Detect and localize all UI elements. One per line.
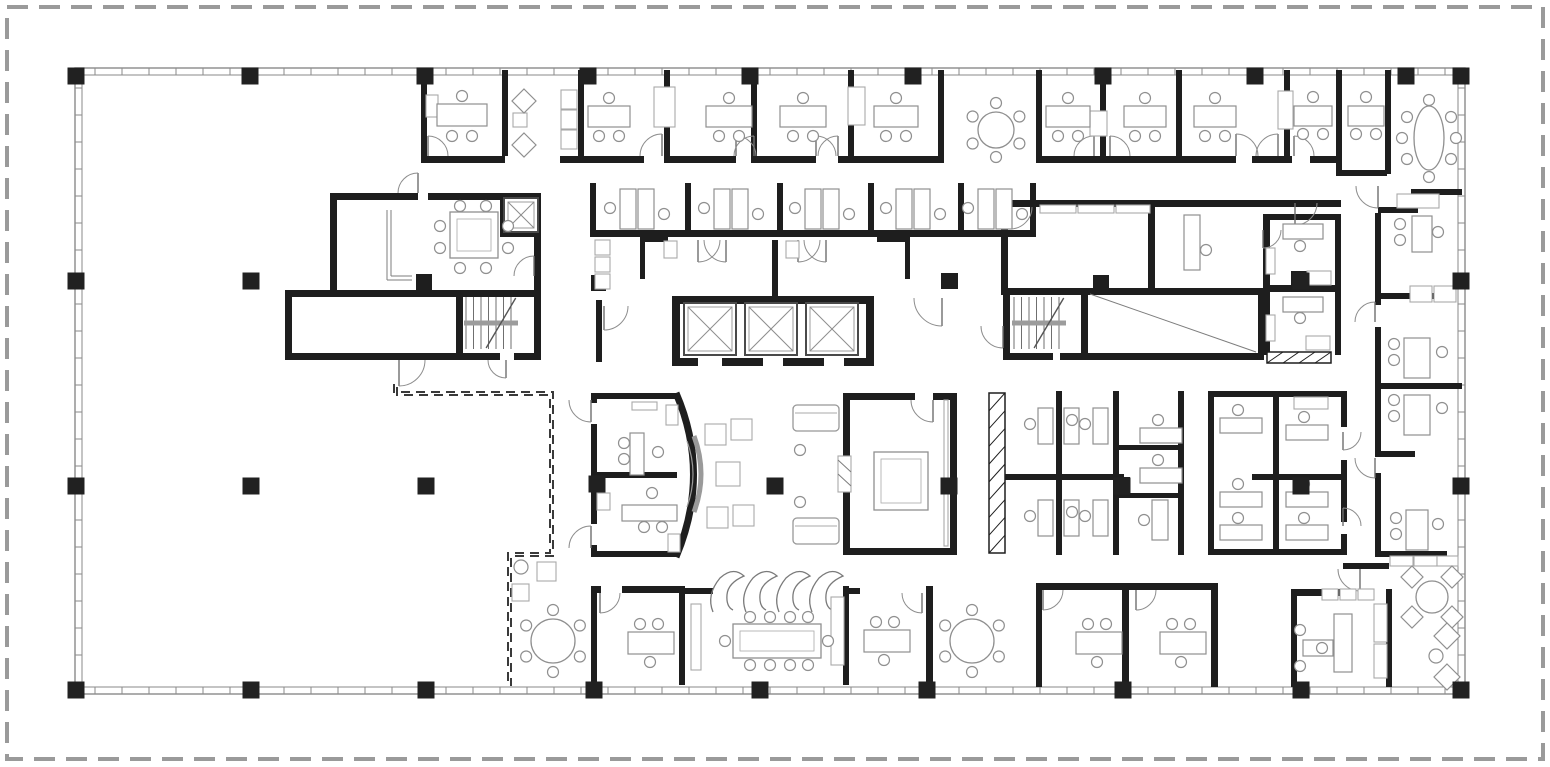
- cabinet: [537, 562, 556, 581]
- chair: [457, 91, 468, 102]
- door-swing: [804, 240, 826, 262]
- oval-tables: [1414, 106, 1444, 170]
- elevator-shaft: [745, 303, 797, 355]
- structural-column: [418, 478, 435, 495]
- chair: [1233, 479, 1244, 490]
- chair: [1371, 129, 1382, 140]
- wall: [868, 183, 874, 233]
- wall: [560, 156, 644, 163]
- wall: [1113, 391, 1119, 555]
- wall: [783, 358, 824, 366]
- diamond-chair: [1441, 566, 1463, 588]
- chair: [1092, 657, 1103, 668]
- wall: [1113, 445, 1184, 450]
- structural-column: [941, 478, 958, 495]
- wall: [1056, 391, 1062, 555]
- wall: [1336, 70, 1342, 170]
- wall: [1258, 288, 1264, 360]
- chair: [808, 131, 819, 142]
- wall: [777, 183, 783, 233]
- cabinet: [512, 584, 529, 601]
- wall: [679, 586, 685, 685]
- wall: [421, 156, 505, 163]
- chair: [1176, 657, 1187, 668]
- cabinet: [513, 113, 527, 127]
- wall: [1263, 214, 1341, 220]
- desk: [1286, 425, 1328, 440]
- chair: [795, 497, 806, 508]
- chair: [1167, 619, 1178, 630]
- chair: [653, 619, 664, 630]
- wall: [1148, 200, 1155, 295]
- chair: [1153, 455, 1164, 466]
- desk: [714, 189, 730, 229]
- wall: [1375, 383, 1462, 389]
- cabinet: [707, 507, 728, 528]
- chair: [745, 612, 756, 623]
- chair: [1233, 405, 1244, 416]
- chair: [1433, 227, 1444, 238]
- chair: [635, 619, 646, 630]
- desk: [1404, 338, 1430, 378]
- wall: [843, 393, 915, 400]
- chair: [574, 620, 585, 631]
- structural-column: [1293, 273, 1310, 290]
- wall: [905, 237, 910, 279]
- desk: [1038, 408, 1053, 444]
- chair: [879, 655, 890, 666]
- wall: [1081, 353, 1263, 360]
- diamond-chair: [1401, 566, 1423, 588]
- desk: [630, 433, 644, 475]
- desk: [1140, 468, 1182, 483]
- desk: [996, 189, 1012, 229]
- desk: [1404, 395, 1430, 435]
- structural-column: [1453, 478, 1470, 495]
- door-swing: [569, 526, 591, 548]
- structural-column: [586, 682, 603, 699]
- desk: [978, 189, 994, 229]
- chair: [1397, 133, 1408, 144]
- chair: [734, 131, 745, 142]
- chair: [1185, 619, 1196, 630]
- wave-panel: [777, 572, 810, 612]
- chair: [1395, 219, 1406, 230]
- structural-column: [243, 478, 260, 495]
- chair: [619, 454, 630, 465]
- conference-table: [733, 624, 821, 658]
- chair: [1210, 93, 1221, 104]
- chair: [991, 98, 1002, 109]
- structural-column: [68, 273, 85, 290]
- demising-line: [397, 387, 550, 686]
- wall: [1093, 275, 1109, 291]
- cabinet: [1307, 271, 1331, 285]
- desk: [1412, 216, 1432, 252]
- chair: [803, 660, 814, 671]
- desk: [1194, 106, 1236, 127]
- wall: [1310, 156, 1336, 163]
- diamond-chair: [512, 89, 536, 113]
- wall: [1273, 391, 1279, 555]
- chair: [521, 620, 532, 631]
- chair: [1140, 93, 1151, 104]
- round-table: [950, 619, 994, 663]
- chair: [1014, 111, 1025, 122]
- desk: [628, 632, 674, 654]
- structural-column: [919, 682, 936, 699]
- desk: [1076, 632, 1122, 654]
- chair: [753, 209, 764, 220]
- chair: [1139, 515, 1150, 526]
- door-swing: [1355, 458, 1375, 478]
- chair: [1080, 511, 1091, 522]
- chair: [1220, 131, 1231, 142]
- floor-plan: Office floor plan: [0, 0, 1550, 767]
- cabinet: [848, 87, 865, 125]
- chair: [467, 131, 478, 142]
- elevator-shaft: [806, 303, 858, 355]
- cabinet: [595, 257, 610, 272]
- wall: [1343, 563, 1389, 569]
- sofas: [793, 405, 839, 544]
- structural-column: [243, 682, 260, 699]
- wall: [843, 586, 847, 593]
- diamond-chair: [1434, 623, 1460, 649]
- wall: [1291, 589, 1297, 687]
- structural-column: [1453, 68, 1470, 85]
- chair: [1299, 513, 1310, 524]
- wall: [1335, 214, 1341, 355]
- wall: [926, 586, 933, 685]
- cabinet: [666, 405, 678, 425]
- door-swing: [911, 400, 933, 422]
- wall: [1148, 200, 1341, 207]
- wall: [1341, 391, 1347, 427]
- cabinet: [1090, 111, 1107, 136]
- oval-conference-table: [1414, 106, 1444, 170]
- chair: [765, 612, 776, 623]
- wall: [1341, 534, 1347, 555]
- chair: [1437, 403, 1448, 414]
- chair: [1351, 129, 1362, 140]
- door-swing: [569, 400, 591, 422]
- chair: [1424, 172, 1435, 183]
- wall: [514, 353, 541, 360]
- round-table: [531, 619, 575, 663]
- chair: [455, 263, 466, 274]
- door-swing: [1355, 302, 1375, 322]
- chair: [795, 445, 806, 456]
- cabinet: [1266, 315, 1275, 341]
- wall: [1122, 583, 1129, 687]
- cabinet: [1040, 205, 1076, 213]
- chair: [967, 605, 978, 616]
- wall: [596, 300, 602, 362]
- wall: [866, 296, 874, 366]
- desk: [1334, 614, 1352, 672]
- wall: [456, 353, 500, 360]
- desk: [1152, 500, 1168, 540]
- chair: [720, 636, 731, 647]
- chair: [1299, 412, 1310, 423]
- wave-panel: [744, 572, 777, 612]
- chair: [614, 131, 625, 142]
- structural-column: [1293, 478, 1310, 495]
- wall: [666, 156, 736, 163]
- structural-column: [68, 682, 85, 699]
- chair: [447, 131, 458, 142]
- chair: [647, 488, 658, 499]
- wall: [640, 237, 645, 279]
- chair: [881, 131, 892, 142]
- wall: [1176, 70, 1182, 163]
- sofa: [793, 405, 839, 431]
- door-swing: [1236, 134, 1258, 156]
- wall: [1208, 549, 1345, 555]
- structural-column: [418, 682, 435, 699]
- stair-run: [464, 297, 518, 349]
- desk: [638, 189, 654, 229]
- wall: [938, 70, 944, 163]
- chair: [1201, 245, 1212, 256]
- desk: [1140, 428, 1182, 443]
- demising-lines: [394, 384, 553, 686]
- door-swing: [399, 360, 425, 386]
- chair: [1389, 339, 1400, 350]
- door-swing: [604, 306, 628, 330]
- structural-column: [1453, 682, 1470, 699]
- sofa: [793, 518, 839, 544]
- wall: [1375, 473, 1381, 555]
- cabinet: [1322, 589, 1338, 600]
- door-swing: [902, 593, 922, 613]
- chair: [1295, 625, 1306, 636]
- wall: [772, 240, 778, 298]
- desk: [1220, 418, 1262, 433]
- door-swing: [1136, 590, 1156, 610]
- door-swing: [1343, 432, 1361, 450]
- wall: [1375, 451, 1415, 457]
- desk: [1160, 632, 1206, 654]
- desk: [1220, 492, 1262, 507]
- chair: [657, 522, 668, 533]
- chair: [1063, 93, 1074, 104]
- chair: [1014, 138, 1025, 149]
- structural-column: [68, 68, 85, 85]
- chair: [574, 651, 585, 662]
- chair: [940, 620, 951, 631]
- desk: [823, 189, 839, 229]
- desk: [805, 189, 821, 229]
- chair: [1389, 411, 1400, 422]
- desk: [1283, 297, 1323, 312]
- door-swing: [818, 136, 838, 156]
- chair: [639, 522, 650, 533]
- cabinet: [831, 597, 844, 665]
- chair: [790, 203, 801, 214]
- desk: [1406, 510, 1428, 550]
- cabinet: [691, 604, 701, 670]
- structural-column: [1114, 478, 1131, 495]
- chair: [881, 203, 892, 214]
- desk: [914, 189, 930, 229]
- door-swing: [698, 240, 720, 262]
- desk: [1220, 525, 1262, 540]
- chair: [785, 660, 796, 671]
- chair: [844, 209, 855, 220]
- chair: [619, 438, 630, 449]
- diamond-chairs: [512, 89, 1463, 690]
- cabinet: [786, 241, 799, 258]
- round-table: [978, 112, 1014, 148]
- cabinet: [561, 110, 577, 129]
- desk: [780, 106, 826, 127]
- cabinet: [561, 90, 577, 109]
- cabinet: [1266, 248, 1275, 274]
- wall: [622, 586, 679, 593]
- chair: [967, 111, 978, 122]
- chair: [1361, 92, 1372, 103]
- cabinet: [1414, 556, 1437, 566]
- door-swing: [1256, 134, 1278, 156]
- wall: [1036, 583, 1042, 687]
- round-table: [1416, 581, 1448, 613]
- chair: [1067, 507, 1078, 518]
- cabinet: [1116, 205, 1150, 213]
- desk: [1093, 500, 1108, 536]
- wall: [684, 588, 713, 594]
- detail-line: [1090, 294, 1256, 352]
- chair: [435, 221, 446, 232]
- desk: [1184, 215, 1200, 270]
- cabinet: [1278, 91, 1293, 129]
- wall: [502, 70, 508, 156]
- chair: [1233, 513, 1244, 524]
- chair: [1073, 131, 1084, 142]
- door-swing: [1356, 186, 1378, 208]
- desk: [1348, 106, 1384, 126]
- cabinet: [632, 402, 657, 410]
- wall: [1208, 391, 1214, 555]
- chair: [1451, 133, 1462, 144]
- cabinet: [731, 419, 752, 440]
- cabinet: [1294, 397, 1328, 409]
- wall: [1211, 583, 1218, 687]
- curved-wall: [676, 393, 694, 557]
- cabinet: [1340, 589, 1356, 600]
- door-swing: [640, 134, 662, 156]
- chair: [901, 131, 912, 142]
- wall: [722, 358, 763, 366]
- desk: [864, 630, 910, 652]
- cabinet: [1437, 556, 1458, 566]
- wall: [950, 393, 957, 555]
- door-swing: [428, 136, 448, 156]
- chair: [940, 651, 951, 662]
- chair: [699, 203, 710, 214]
- desks: [437, 104, 1432, 672]
- chair: [1295, 661, 1306, 672]
- chair: [1017, 209, 1028, 220]
- chair: [993, 651, 1004, 662]
- structural-column: [417, 68, 434, 85]
- wall: [1375, 327, 1381, 453]
- wall: [1003, 288, 1083, 295]
- chair: [548, 605, 559, 616]
- structural-column: [1453, 273, 1470, 290]
- demising-line: [394, 384, 553, 686]
- diamond-chair: [512, 133, 536, 157]
- chair: [1067, 415, 1078, 426]
- door-swing: [981, 326, 1003, 348]
- chair: [724, 93, 735, 104]
- diamond-chair: [1441, 606, 1463, 628]
- structural-column: [905, 68, 922, 85]
- chair: [889, 617, 900, 628]
- wall: [330, 193, 337, 293]
- chair: [935, 209, 946, 220]
- structural-column: [1398, 68, 1415, 85]
- wall: [754, 156, 816, 163]
- wall: [941, 273, 958, 289]
- structural-column: [580, 68, 597, 85]
- chair: [1080, 419, 1091, 430]
- structural-column: [752, 682, 769, 699]
- wall: [1252, 156, 1292, 163]
- desk: [1283, 224, 1323, 239]
- wall: [591, 586, 597, 685]
- chair: [1053, 131, 1064, 142]
- wall: [877, 237, 910, 242]
- wall: [1036, 70, 1042, 163]
- chair: [1025, 511, 1036, 522]
- chair: [991, 152, 1002, 163]
- diamond-chair: [1401, 606, 1423, 628]
- structural-column: [589, 476, 606, 493]
- wall: [672, 296, 680, 366]
- chair: [967, 667, 978, 678]
- wall: [1375, 213, 1381, 305]
- desk: [874, 106, 918, 127]
- wall: [285, 353, 463, 360]
- wall: [844, 358, 874, 366]
- wall: [1385, 70, 1391, 174]
- wall: [416, 274, 432, 292]
- wall: [685, 183, 691, 233]
- door-swing: [1043, 590, 1063, 610]
- structural-column: [1115, 682, 1132, 699]
- wall: [1081, 288, 1088, 360]
- chair: [798, 93, 809, 104]
- cabinet: [1390, 556, 1413, 566]
- cabinet: [1410, 286, 1432, 302]
- stair-rail: [464, 321, 518, 326]
- hatch-outline: [1267, 352, 1331, 363]
- door-swing: [798, 240, 820, 262]
- chair: [1391, 513, 1402, 524]
- chair: [1391, 529, 1402, 540]
- structural-column: [1293, 682, 1310, 699]
- desk: [620, 189, 636, 229]
- wave-partition: [711, 572, 843, 612]
- elevator-shaft: [684, 303, 736, 355]
- chair: [788, 131, 799, 142]
- cabinet: [716, 462, 740, 486]
- chair: [514, 560, 528, 574]
- cabinet: [733, 505, 754, 526]
- wall: [838, 156, 942, 163]
